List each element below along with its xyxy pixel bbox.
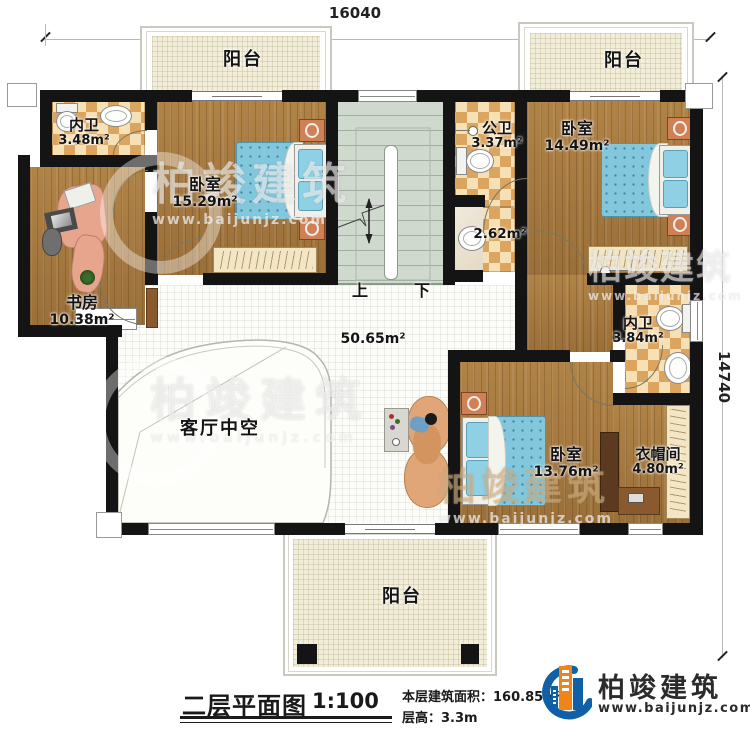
wall: [610, 350, 625, 362]
wall: [443, 90, 455, 285]
wall: [145, 90, 157, 130]
stair-handrail: [384, 145, 398, 280]
pillow: [466, 422, 490, 458]
wall: [450, 270, 483, 282]
dimension-top-value: 16040: [325, 4, 385, 22]
brand-logo-name: 柏竣建筑: [598, 666, 722, 705]
wall: [417, 90, 570, 102]
plan-scale: 1:100: [312, 689, 379, 713]
wall: [282, 90, 358, 102]
wall: [40, 155, 157, 167]
wall: [455, 195, 485, 207]
wall: [587, 273, 703, 285]
room-label-balcony-top-right: 阳台: [574, 51, 674, 72]
wall: [690, 342, 703, 535]
pillow: [298, 149, 323, 179]
living-area-value: 50.65m²: [323, 331, 423, 347]
dimension-right-value: 14740: [715, 347, 733, 407]
room-label-bath-top-left: 内卫 3.48m²: [44, 117, 124, 149]
wall: [203, 273, 338, 285]
wall-pier: [96, 512, 122, 538]
window: [358, 90, 417, 102]
wall: [18, 155, 30, 337]
wall: [40, 90, 192, 102]
nightstand: [461, 392, 487, 415]
brand-logo-icon: [538, 662, 592, 724]
window: [498, 523, 580, 535]
flower: [389, 414, 394, 419]
room-label-study: 书房 10.38m²: [42, 294, 122, 328]
flower: [395, 419, 400, 424]
stair-label-up: 上: [345, 282, 375, 300]
room-label-balcony-top-left: 阳台: [193, 50, 293, 71]
plant: [80, 270, 95, 285]
desk-chair: [42, 228, 62, 256]
window: [690, 300, 703, 342]
room-label-public-bath: 公卫 3.37m²: [457, 120, 537, 152]
pillow: [466, 460, 490, 496]
window: [628, 523, 663, 535]
room-label-cloakroom: 衣帽间 4.80m²: [608, 446, 708, 478]
wall-pier: [7, 83, 37, 107]
pillow: [663, 150, 688, 178]
floor-plan-page: 16040 14740: [0, 0, 750, 732]
room-label-wash-area: 2.62m²: [460, 227, 540, 243]
stair-arrow-up: [366, 198, 373, 208]
wall: [448, 350, 460, 535]
table-knob: [392, 438, 400, 446]
wall: [106, 325, 118, 535]
brand-logo-url: www.baijunjz.com: [598, 701, 750, 716]
room-label-bedroom-bottom: 卧室 13.76m²: [516, 446, 616, 480]
sink: [664, 352, 692, 384]
pillow: [298, 181, 323, 211]
wall: [690, 90, 703, 300]
wall: [448, 350, 570, 362]
fixture-lead: [609, 270, 629, 271]
sliding-door: [570, 91, 660, 101]
floor-height-line: 层高：3.3m: [402, 707, 478, 726]
wall: [326, 90, 338, 285]
person-head: [425, 413, 437, 425]
room-label-balcony-bottom: 阳台: [352, 587, 452, 608]
wardrobe: [213, 247, 317, 273]
pillow: [663, 180, 688, 208]
room-label-bedroom-top-right: 卧室 14.49m²: [527, 120, 627, 154]
flower: [390, 425, 395, 430]
wall: [663, 523, 703, 535]
room-label-bedroom-top-left: 卧室 15.29m²: [155, 176, 255, 210]
sliding-door: [192, 91, 282, 101]
wall-pier: [685, 83, 713, 109]
dresser-item: [628, 493, 644, 503]
room-label-living-void: 客厅中空: [160, 419, 280, 440]
wall: [275, 523, 345, 535]
room-label-bath-right: 内卫 3.84m²: [600, 315, 676, 347]
toilet-bowl: [466, 149, 494, 173]
title-underline: [180, 716, 392, 719]
wall: [435, 523, 498, 535]
title-underline-2: [180, 722, 392, 723]
wall: [145, 273, 158, 285]
window: [148, 523, 275, 535]
door-leaf: [146, 288, 158, 328]
wall: [580, 523, 628, 535]
nightstand: [299, 119, 325, 142]
stair-arrow-down: [366, 234, 373, 244]
nightstand: [299, 217, 325, 240]
stair-label-down: 下: [407, 282, 437, 300]
sliding-door: [345, 524, 435, 534]
